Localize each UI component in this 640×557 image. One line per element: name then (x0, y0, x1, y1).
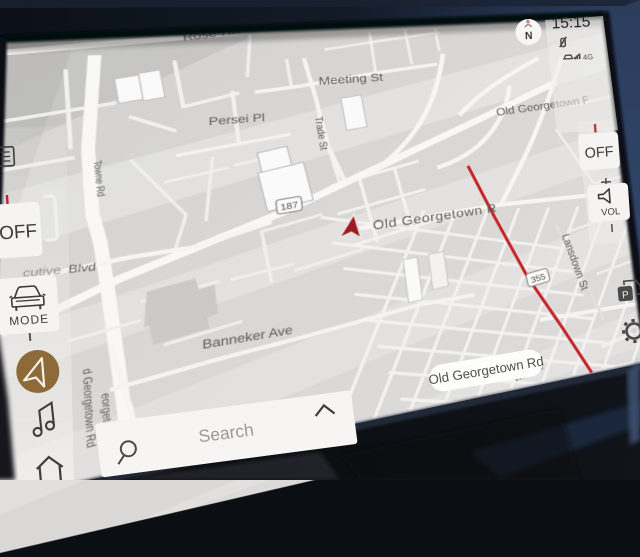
svg-text:15:15: 15:15 (551, 13, 591, 32)
svg-text:OFF: OFF (584, 144, 614, 162)
svg-text:P: P (622, 290, 630, 302)
svg-text:VOL: VOL (601, 206, 621, 218)
svg-text:N: N (525, 30, 533, 42)
svg-text:4G: 4G (583, 52, 594, 62)
svg-text:OFF: OFF (0, 221, 38, 245)
svg-text:MODE: MODE (9, 312, 50, 329)
